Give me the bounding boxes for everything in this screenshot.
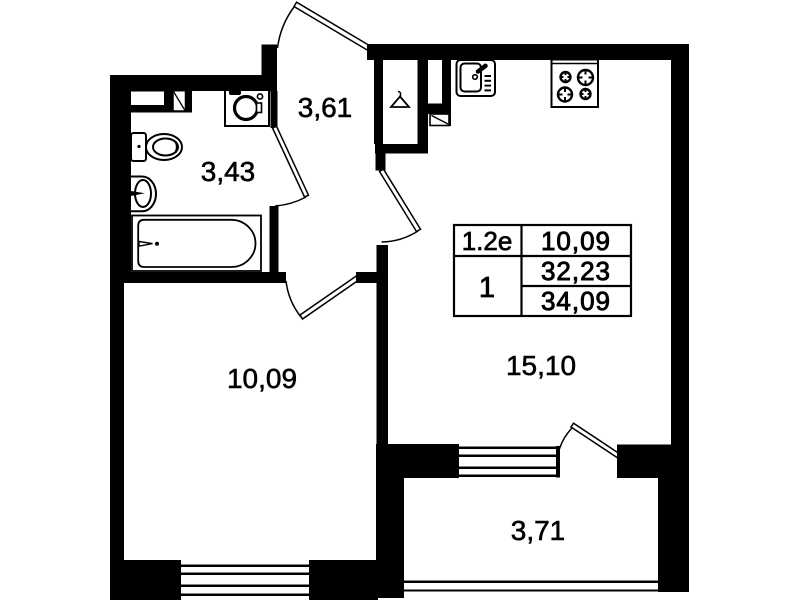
svg-text:1.2e: 1.2e (462, 226, 513, 256)
svg-text:1: 1 (479, 272, 495, 304)
svg-text:3,71: 3,71 (511, 515, 566, 546)
svg-text:34,09: 34,09 (541, 286, 611, 316)
svg-text:32,23: 32,23 (541, 256, 611, 286)
svg-text:3,61: 3,61 (298, 92, 353, 123)
svg-text:15,10: 15,10 (506, 350, 576, 381)
svg-text:10,09: 10,09 (227, 363, 297, 394)
svg-text:3,43: 3,43 (201, 156, 256, 187)
svg-text:10,09: 10,09 (541, 226, 611, 256)
